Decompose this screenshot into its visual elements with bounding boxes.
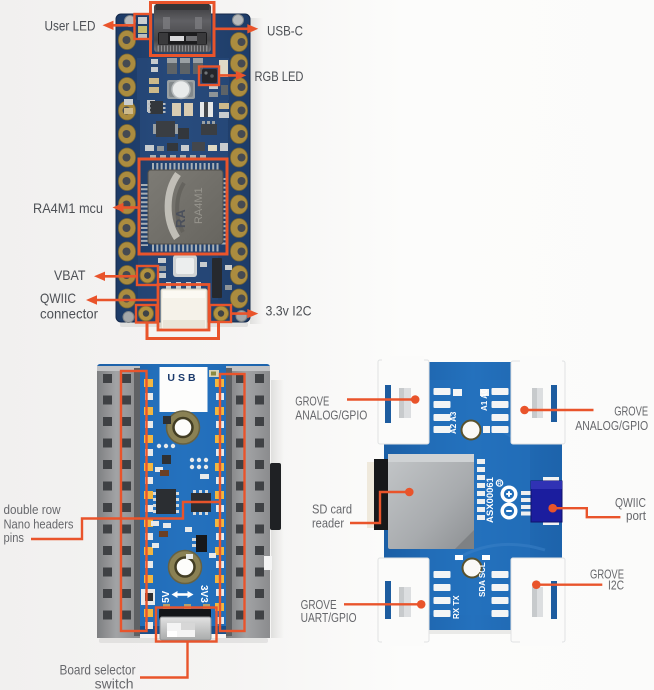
svg-text:A1 A0: A1 A0: [480, 388, 489, 411]
svg-text:RA4M1 mcu: RA4M1 mcu: [33, 200, 103, 216]
svg-text:QWIIC: QWIIC: [40, 290, 76, 306]
svg-text:USB: USB: [167, 372, 198, 384]
svg-text:3V3: 3V3: [198, 585, 209, 603]
svg-text:RX TX: RX TX: [452, 595, 461, 619]
svg-text:connector: connector: [40, 305, 98, 321]
svg-text:port: port: [626, 508, 646, 523]
svg-text:5V: 5V: [161, 590, 172, 603]
svg-text:RA4M1: RA4M1: [193, 187, 205, 224]
svg-text:GROVE: GROVE: [614, 404, 648, 419]
svg-text:ANALOG/GPIO: ANALOG/GPIO: [575, 418, 648, 433]
svg-text:ASX00061: ASX00061: [485, 476, 496, 523]
svg-text:RGB LED: RGB LED: [255, 68, 304, 84]
svg-text:VBAT: VBAT: [54, 267, 86, 283]
svg-text:pins: pins: [4, 531, 25, 545]
svg-text:ANALOG/GPIO: ANALOG/GPIO: [295, 408, 367, 423]
svg-text:USB-C: USB-C: [267, 22, 303, 38]
svg-text:GROVE: GROVE: [295, 394, 329, 409]
svg-text:SD card: SD card: [312, 502, 352, 517]
svg-text:RA: RA: [173, 209, 188, 228]
svg-text:A2 A3: A2 A3: [449, 411, 458, 434]
svg-text:User LED: User LED: [45, 17, 96, 33]
svg-text:reader: reader: [312, 516, 345, 531]
svg-text:switch: switch: [95, 676, 134, 690]
svg-text:R: R: [497, 481, 502, 487]
svg-text:SDA SCL: SDA SCL: [478, 562, 487, 597]
svg-text:UART/GPIO: UART/GPIO: [301, 610, 357, 625]
svg-text:Nano headers: Nano headers: [4, 518, 74, 532]
svg-text:I2C: I2C: [608, 578, 624, 593]
svg-text:3.3v I2C: 3.3v I2C: [266, 302, 312, 318]
svg-text:double row: double row: [4, 503, 62, 517]
